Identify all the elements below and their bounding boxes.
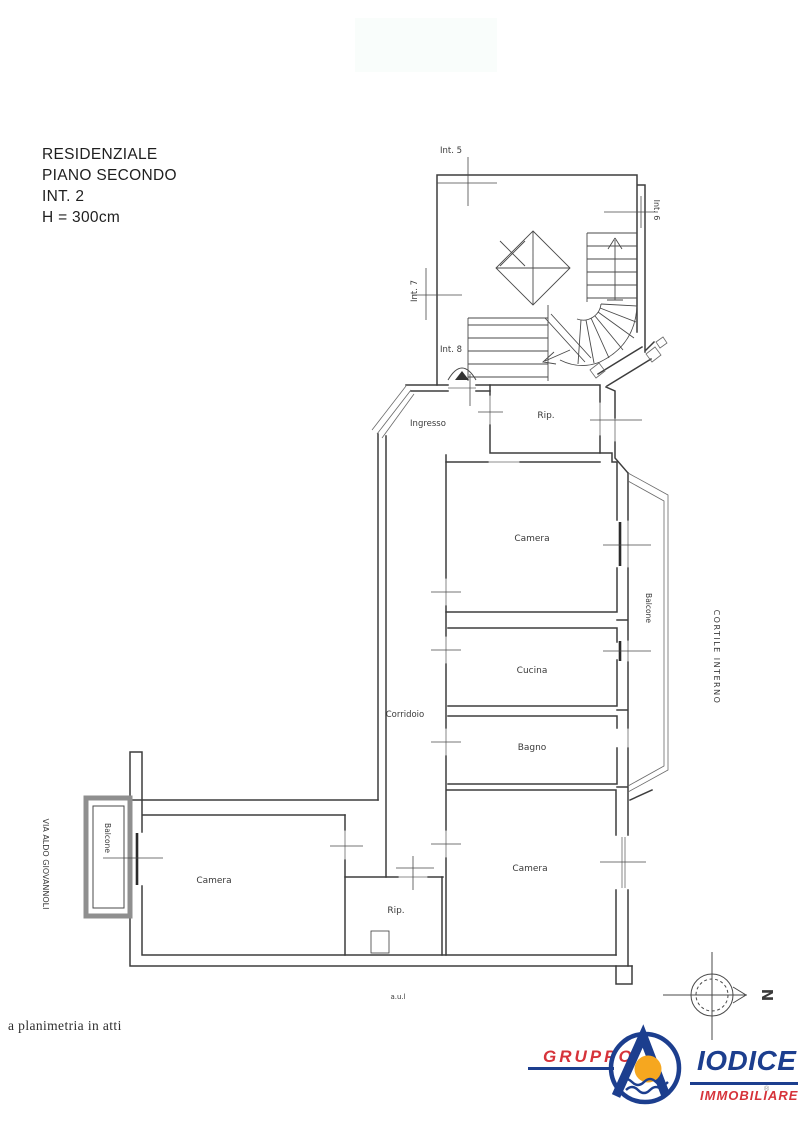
staircase bbox=[448, 231, 637, 381]
thin-details bbox=[130, 337, 668, 953]
label-int7: Int. 7 bbox=[410, 280, 420, 302]
label-camera-left: Camera bbox=[196, 876, 231, 886]
logo-right-underline bbox=[690, 1082, 798, 1085]
label-balcone-left: Balcone bbox=[103, 823, 112, 853]
label-street: VIA ALDO GIOVANNOLI bbox=[41, 818, 50, 909]
floor-plan-svg: N Int. 5 Int. 6 Int. 7 Int. 8 Ingresso R… bbox=[0, 0, 800, 1130]
label-cortile-interno: CORTILE INTERNO bbox=[712, 610, 721, 705]
label-rip-top: Rip. bbox=[537, 411, 554, 421]
walls bbox=[130, 175, 654, 984]
label-tiny-note: a.u.l bbox=[390, 993, 405, 1001]
dimension-marks bbox=[103, 157, 658, 890]
compass-north-label: N bbox=[758, 989, 776, 1002]
label-camera-top: Camera bbox=[514, 534, 549, 544]
footer-note: a planimetria in atti bbox=[8, 1018, 122, 1034]
logo-iodice-text: IODICE bbox=[697, 1045, 796, 1077]
logo-emblem-icon bbox=[601, 1024, 689, 1116]
label-int6: Int. 6 bbox=[652, 200, 661, 221]
agency-logo: GRUPPO IODICE IMMOBILIARE ® bbox=[520, 1030, 800, 1120]
label-bagno: Bagno bbox=[518, 743, 547, 753]
logo-immobiliare-text: IMMOBILIARE bbox=[700, 1088, 798, 1103]
logo-registered-mark: ® bbox=[764, 1086, 769, 1093]
label-cucina: Cucina bbox=[517, 666, 548, 676]
label-corridoio: Corridoio bbox=[386, 710, 425, 720]
plan-labels: Int. 5 Int. 6 Int. 7 Int. 8 Ingresso Rip… bbox=[41, 146, 721, 1001]
floorplan-page: RESIDENZIALE PIANO SECONDO INT. 2 H = 30… bbox=[0, 0, 800, 1130]
label-balcone-right: Balcone bbox=[644, 593, 653, 623]
label-ingresso: Ingresso bbox=[410, 419, 446, 429]
label-int5: Int. 5 bbox=[440, 146, 462, 156]
label-camera-right: Camera bbox=[512, 864, 547, 874]
label-rip-bottom: Rip. bbox=[387, 906, 404, 916]
balcony-left bbox=[86, 798, 130, 916]
label-int8: Int. 8 bbox=[440, 345, 462, 355]
